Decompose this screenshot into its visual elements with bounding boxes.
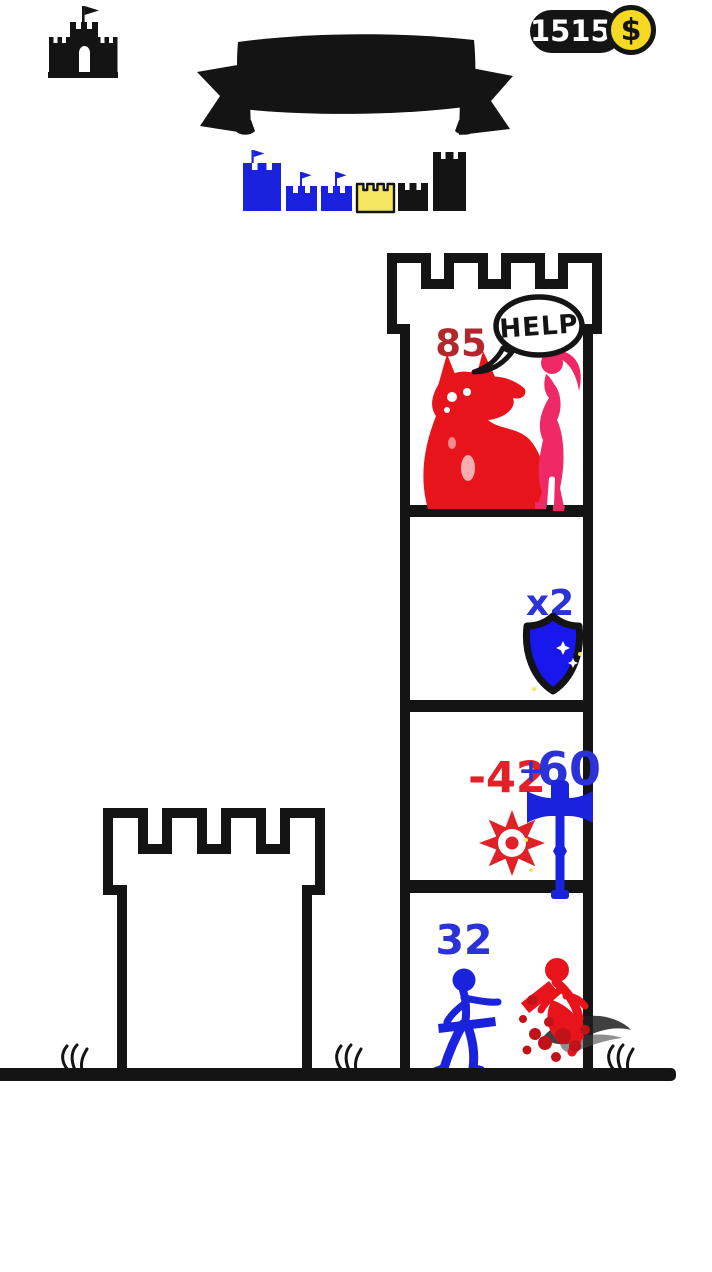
- buff-value: 60: [537, 742, 601, 796]
- progress-castle-5-black-castle: [398, 183, 428, 211]
- monster-texture-2: [448, 437, 456, 449]
- progress-castle-1-blue-tower: [243, 150, 281, 211]
- castle-menu-button[interactable]: [46, 4, 120, 80]
- level-progress: [240, 145, 470, 215]
- grass-tuft-left: [63, 1045, 87, 1070]
- monster-eye-2: [463, 388, 471, 396]
- castle-icon: [46, 4, 120, 80]
- grass-tuft-right: [609, 1045, 633, 1070]
- grass-tuft-middle: [337, 1045, 361, 1070]
- coin-currency-symbol: $: [621, 13, 642, 48]
- monster-nose-spot: [444, 407, 450, 413]
- hero-power-value: 32: [435, 916, 492, 964]
- banner-ribbon-icon: [192, 30, 518, 142]
- ground-line: [0, 1068, 676, 1081]
- floor-divider-2: [400, 700, 593, 712]
- enemy-power-value: 85: [435, 322, 487, 365]
- title-banner: [192, 30, 518, 142]
- battle-scene: 85 HELP: [0, 250, 712, 1090]
- coin-icon: $: [606, 5, 656, 55]
- hammer-sparkle: [524, 838, 528, 842]
- hammer-sparkle-2: [529, 868, 533, 872]
- left-castle-tower: [108, 813, 320, 1072]
- help-bubble-text: HELP: [499, 309, 580, 344]
- progress-castle-3-blue-castle: [321, 172, 352, 211]
- monster-eye: [447, 392, 457, 402]
- tower-floor-top[interactable]: 85 HELP: [423, 297, 582, 511]
- progress-castle-6-black-tower: [433, 152, 466, 211]
- red-saw-blade-icon: [479, 810, 545, 876]
- game-screen: 15150 $: [0, 0, 712, 1272]
- monster-texture: [461, 455, 475, 481]
- progress-castle-2-blue-castle: [286, 172, 317, 211]
- progress-castle-4-current-yellow: [357, 184, 394, 212]
